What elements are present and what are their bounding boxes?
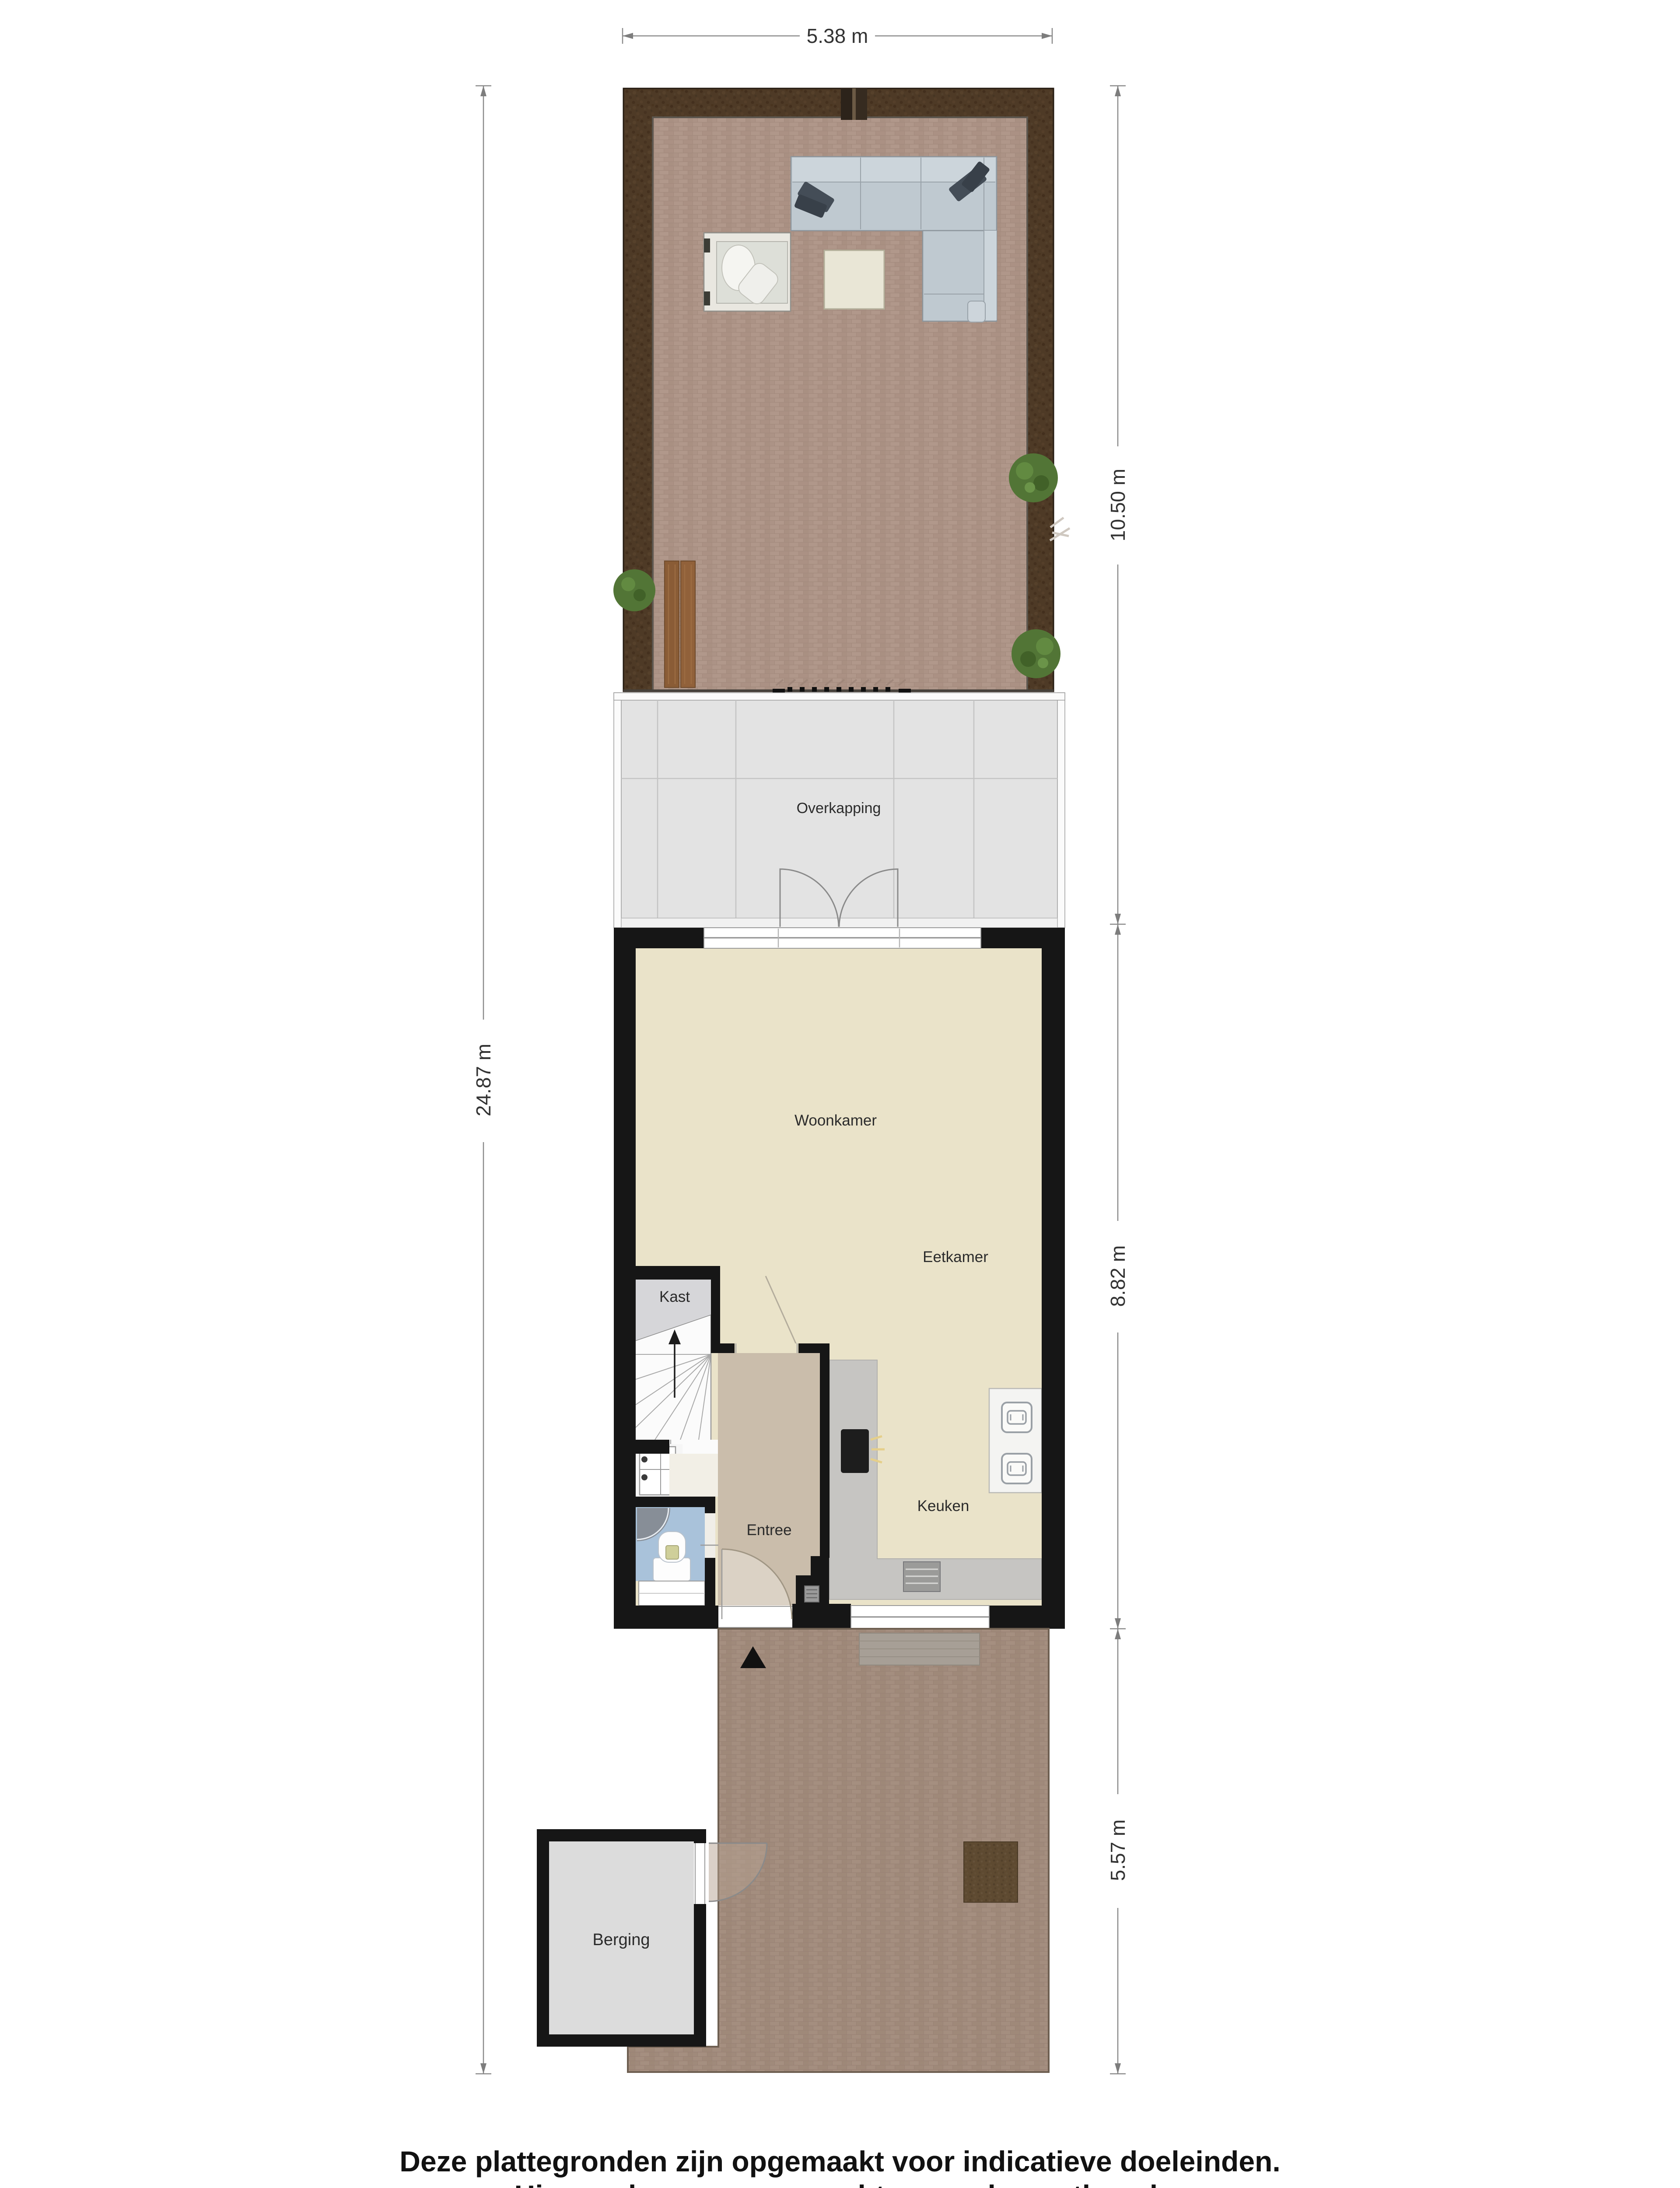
- svg-text:5.38 m: 5.38 m: [807, 25, 868, 47]
- svg-text:Kast: Kast: [659, 1288, 690, 1305]
- svg-text:Eetkamer: Eetkamer: [923, 1248, 988, 1266]
- svg-text:24.87 m: 24.87 m: [472, 1044, 495, 1116]
- svg-text:Deze plattegronden zijn opgema: Deze plattegronden zijn opgemaakt voor i…: [399, 2145, 1280, 2177]
- svg-text:Keuken: Keuken: [917, 1497, 969, 1515]
- svg-text:Woonkamer: Woonkamer: [794, 1112, 877, 1129]
- svg-text:Entree: Entree: [746, 1522, 791, 1539]
- svg-text:Overkapping: Overkapping: [797, 800, 881, 817]
- svg-text:8.82 m: 8.82 m: [1106, 1245, 1129, 1307]
- svg-text:10.50 m: 10.50 m: [1106, 469, 1129, 541]
- svg-text:5.57 m: 5.57 m: [1106, 1820, 1129, 1881]
- svg-text:Berging: Berging: [593, 1931, 650, 1949]
- svg-text:Hieraan kunnen geen rechten wo: Hieraan kunnen geen rechten worden ontle…: [514, 2179, 1166, 2188]
